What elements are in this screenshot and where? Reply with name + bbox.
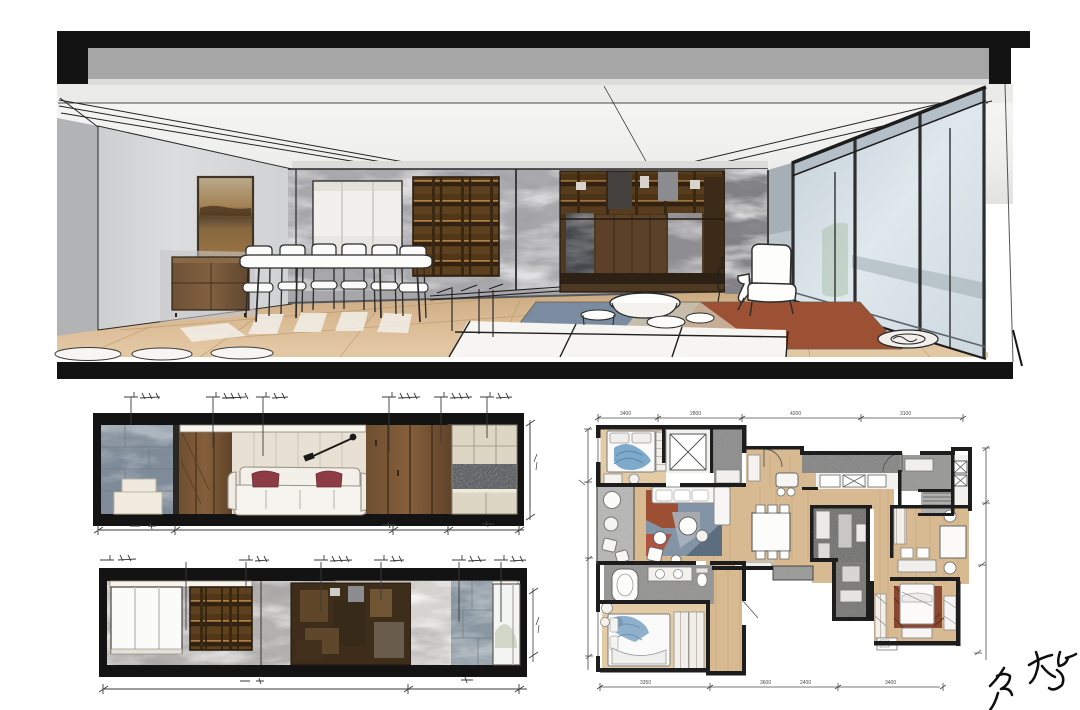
svg-text:3400: 3400 <box>620 411 631 417</box>
svg-text:3400: 3400 <box>885 680 896 686</box>
svg-text:3100: 3100 <box>900 411 911 417</box>
svg-text:2800: 2800 <box>690 411 701 417</box>
svg-text:3350: 3350 <box>640 680 651 686</box>
svg-text:3600: 3600 <box>760 680 771 686</box>
svg-text:4200: 4200 <box>790 411 801 417</box>
svg-text:2400: 2400 <box>800 680 811 686</box>
